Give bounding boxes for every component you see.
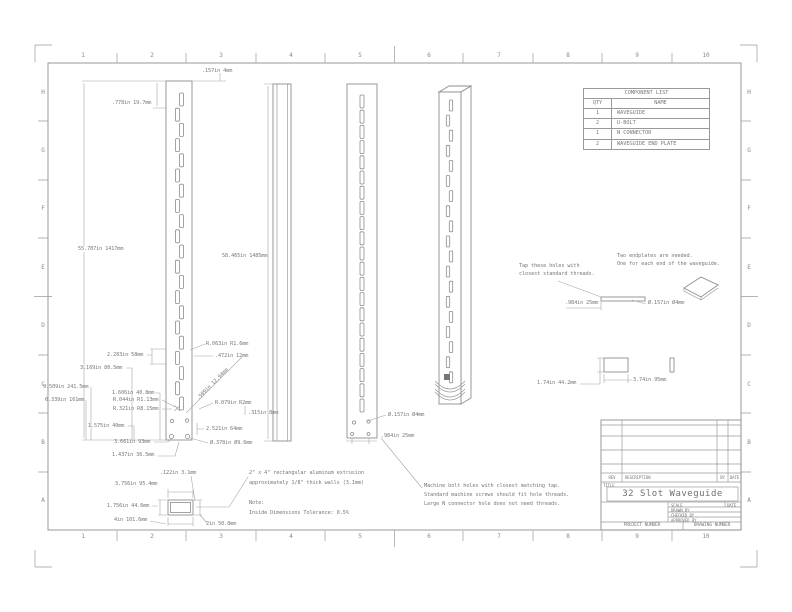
slot bbox=[360, 338, 364, 351]
zone-top-6: 6 bbox=[421, 52, 437, 59]
dim-offset-1606: 1.606in 40.8mm bbox=[112, 390, 154, 396]
slot bbox=[176, 169, 180, 182]
dim-radius-044: R.044in R1.13mm bbox=[113, 397, 158, 403]
zone-ticks-left bbox=[34, 121, 52, 472]
slot bbox=[180, 306, 184, 319]
dim-outer-width: 4in 101.6mm bbox=[114, 517, 147, 523]
zone-right-g: G bbox=[743, 147, 755, 154]
slot bbox=[360, 323, 364, 336]
endplate-side-view bbox=[601, 297, 645, 301]
zone-top-8: 8 bbox=[560, 52, 576, 59]
slot bbox=[449, 160, 452, 171]
slot bbox=[176, 230, 180, 243]
zone-bottom-9: 9 bbox=[629, 533, 645, 540]
row-name: WAVEGUIDE END PLATE bbox=[612, 140, 709, 149]
zone-bottom-1: 1 bbox=[75, 533, 91, 540]
note-label: Note: bbox=[249, 500, 264, 506]
zone-top-2: 2 bbox=[144, 52, 160, 59]
dim-endplate-height: 1.74in 44.2mm bbox=[537, 380, 576, 386]
dim-slot-length: .472in 12mm bbox=[215, 353, 248, 359]
endplate-front-view bbox=[604, 358, 628, 372]
note-endplates-line2: One for each end of the waveguide. bbox=[617, 261, 720, 267]
note-extrusion-line2: approximately 1/8" thick walls (3.1mm) bbox=[249, 480, 364, 486]
zone-right-d: D bbox=[743, 322, 755, 329]
description-header: DESCRIPTION bbox=[625, 475, 650, 480]
row-name: WAVEGUIDE bbox=[612, 109, 709, 118]
date-header: DATE bbox=[728, 475, 741, 480]
slot bbox=[180, 245, 184, 258]
row-qty: 2 bbox=[584, 119, 612, 128]
slot bbox=[176, 139, 180, 152]
slot bbox=[449, 251, 452, 262]
slot bbox=[360, 277, 364, 290]
zone-left-f: F bbox=[37, 205, 49, 212]
dim-body-length: 55.787in 1417mm bbox=[78, 246, 123, 252]
zone-left-b: B bbox=[37, 439, 49, 446]
dim-offset-315: .315in 8mm bbox=[248, 410, 278, 416]
dim-endplate-hole-dia: Ø.157in Ø4mm bbox=[648, 300, 684, 306]
project-number-label: PROJECT NUMBER bbox=[601, 523, 683, 528]
table-row: 2 U-BOLT bbox=[584, 119, 709, 129]
rear-view bbox=[346, 84, 422, 488]
dim-inner-width: 3.756in 95.4mm bbox=[115, 481, 157, 487]
slot bbox=[446, 115, 449, 126]
note-machine-bolts-line2: Standard machine screws should fit hole … bbox=[424, 492, 569, 498]
cross-section-detail bbox=[150, 476, 248, 526]
approved-by-label: APPROVED BY bbox=[671, 518, 696, 523]
component-list-title: COMPONENT LIST bbox=[584, 89, 709, 99]
dim-wall-thickness: .122in 3.1mm bbox=[160, 470, 196, 476]
slot bbox=[180, 123, 184, 136]
dim-endplate-hole-spacing: .984in 25mm bbox=[565, 300, 598, 306]
slot bbox=[360, 308, 364, 321]
dim-endplate-width: 3.74in 95mm bbox=[633, 377, 666, 383]
component-list-header-name: NAME bbox=[612, 99, 709, 108]
endplate-edge-view bbox=[670, 358, 674, 372]
table-row: 1 WAVEGUIDE bbox=[584, 109, 709, 119]
slot bbox=[360, 232, 364, 245]
dim-offset-3169: 3.169in 80.5mm bbox=[80, 365, 122, 371]
zone-right-c: C bbox=[743, 381, 755, 388]
zone-right-f: F bbox=[743, 205, 755, 212]
dim-inner-height: 1.756in 44.6mm bbox=[107, 503, 149, 509]
row-qty: 1 bbox=[584, 129, 612, 138]
slot bbox=[449, 281, 452, 292]
slot bbox=[180, 154, 184, 167]
zone-left-d: D bbox=[37, 322, 49, 329]
slot bbox=[449, 191, 452, 202]
dim-offset-9509: 9.509in 241.5mm bbox=[43, 384, 88, 390]
front-view bbox=[166, 81, 192, 440]
slot bbox=[176, 351, 180, 364]
row-name: U-BOLT bbox=[612, 119, 709, 128]
isometric-view bbox=[435, 86, 471, 404]
zone-top-7: 7 bbox=[491, 52, 507, 59]
dim-radius-079: R.079in R2mm bbox=[215, 400, 251, 406]
slot bbox=[176, 291, 180, 304]
zone-left-h: H bbox=[37, 89, 49, 96]
slot bbox=[180, 184, 184, 197]
dim-offset-1437: 1.437in 36.5mm bbox=[112, 452, 154, 458]
zone-bottom-7: 7 bbox=[491, 533, 507, 540]
slot bbox=[176, 382, 180, 395]
slot bbox=[360, 141, 364, 154]
endplate-dim-lines bbox=[558, 281, 646, 384]
drawing-sheet: 1 2 3 4 5 6 7 8 9 10 1 2 3 4 5 6 7 8 9 1… bbox=[0, 0, 792, 612]
zone-bottom-3: 3 bbox=[213, 533, 229, 540]
slot bbox=[446, 357, 449, 368]
slot bbox=[176, 321, 180, 334]
slot bbox=[360, 217, 364, 230]
zone-bottom-10: 10 bbox=[698, 533, 714, 540]
zone-left-a: A bbox=[37, 497, 49, 504]
slot bbox=[360, 125, 364, 138]
zone-top-3: 3 bbox=[213, 52, 229, 59]
slot bbox=[360, 247, 364, 260]
dim-top-offset: .157in 4mm bbox=[202, 68, 232, 74]
slot bbox=[449, 221, 452, 232]
row-name: N CONNECTOR bbox=[612, 129, 709, 138]
slot bbox=[360, 171, 364, 184]
slot bbox=[446, 327, 449, 338]
slot bbox=[446, 145, 449, 156]
note-endplates-line1: Two endplates are needed. bbox=[617, 253, 693, 259]
by-header: BY bbox=[717, 475, 728, 480]
n-connector-block bbox=[444, 374, 450, 380]
zone-right-b: B bbox=[743, 439, 755, 446]
zone-top-1: 1 bbox=[75, 52, 91, 59]
zone-top-10: 10 bbox=[698, 52, 714, 59]
slot bbox=[360, 95, 364, 108]
cross-section-dim-lines bbox=[150, 476, 248, 526]
row-qty: 2 bbox=[584, 140, 612, 149]
dim-offset-1575: 1.575in 40mm bbox=[88, 423, 124, 429]
date-label: DATE bbox=[727, 503, 736, 508]
zone-ticks-bottom bbox=[117, 530, 672, 547]
slot bbox=[360, 186, 364, 199]
table-row: 2 WAVEGUIDE END PLATE bbox=[584, 140, 709, 149]
slot bbox=[446, 236, 449, 247]
zone-bottom-8: 8 bbox=[560, 533, 576, 540]
slot bbox=[176, 199, 180, 212]
dim-offset-6339: 6.339in 161mm bbox=[45, 397, 84, 403]
dim-rear-hole-dia: Ø.157in Ø4mm bbox=[388, 412, 424, 418]
slot bbox=[360, 369, 364, 382]
endplate-views bbox=[558, 277, 718, 384]
dim-outer-height: 2in 50.8mm bbox=[206, 521, 236, 527]
dim-first-slot: .778in 19.7mm bbox=[112, 100, 151, 106]
slot bbox=[180, 336, 184, 349]
zone-top-5: 5 bbox=[352, 52, 368, 59]
zone-ticks-right bbox=[741, 121, 758, 472]
zone-right-h: H bbox=[743, 89, 755, 96]
zone-right-a: A bbox=[743, 497, 755, 504]
slot bbox=[180, 215, 184, 228]
zone-top-4: 4 bbox=[283, 52, 299, 59]
drawing-number-label: DRAWING NUMBER bbox=[683, 523, 741, 528]
zone-bottom-6: 6 bbox=[421, 533, 437, 540]
slot bbox=[180, 397, 184, 410]
dim-slot-pitch: 2.283in 58mm bbox=[107, 352, 143, 358]
note-tap-holes-line1: Tap these holes with bbox=[519, 263, 579, 269]
slot bbox=[446, 176, 449, 187]
slot bbox=[360, 399, 364, 412]
dim-hole-dia-378: Ø.378in Ø9.6mm bbox=[210, 440, 252, 446]
dim-slot-corner-radius: R.063in R1.6mm bbox=[206, 341, 248, 347]
zone-left-g: G bbox=[37, 147, 49, 154]
slot bbox=[360, 384, 364, 397]
note-machine-bolts-line1: Machine bolt holes with closest matching… bbox=[424, 483, 560, 489]
slot bbox=[449, 100, 452, 111]
dim-rear-hole-spacing: .984in 25mm bbox=[381, 433, 414, 439]
slot bbox=[360, 156, 364, 169]
slot bbox=[360, 110, 364, 123]
slot bbox=[180, 93, 184, 106]
slot bbox=[360, 201, 364, 214]
note-tolerance: Inside Dimensions Tolerance: 0.5% bbox=[249, 510, 349, 516]
row-qty: 1 bbox=[584, 109, 612, 118]
zone-bottom-4: 4 bbox=[283, 533, 299, 540]
side-view bbox=[273, 84, 291, 441]
slot bbox=[449, 130, 452, 141]
component-list-table: COMPONENT LIST QTY NAME 1 WAVEGUIDE 2 U-… bbox=[583, 88, 710, 150]
component-list-header: QTY NAME bbox=[584, 99, 709, 109]
slot bbox=[360, 353, 364, 366]
slot bbox=[176, 260, 180, 273]
note-extrusion-line1: 2" x 4" rectangular aluminum extrusion bbox=[249, 470, 364, 476]
note-machine-bolts-line3: Large N connector hole does not need thr… bbox=[424, 501, 560, 507]
zone-bottom-2: 2 bbox=[144, 533, 160, 540]
dim-offset-3661: 3.661in 93mm bbox=[114, 439, 150, 445]
zone-bottom-5: 5 bbox=[352, 533, 368, 540]
zone-top-9: 9 bbox=[629, 52, 645, 59]
slot bbox=[180, 275, 184, 288]
slot bbox=[180, 367, 184, 380]
zone-ticks-top bbox=[117, 46, 672, 63]
slot bbox=[360, 293, 364, 306]
dim-overall-length: 58.465in 1485mm bbox=[222, 253, 267, 259]
page-title: 32 Slot Waveguide bbox=[607, 488, 738, 500]
note-tap-holes-line2: closest standard threads. bbox=[519, 271, 595, 277]
slot bbox=[446, 296, 449, 307]
slot bbox=[360, 262, 364, 275]
zone-left-e: E bbox=[37, 264, 49, 271]
slot bbox=[446, 206, 449, 217]
slot bbox=[176, 108, 180, 121]
component-list-header-qty: QTY bbox=[584, 99, 612, 108]
dim-offset-2521: 2.521in 64mm bbox=[206, 426, 242, 432]
slot bbox=[446, 266, 449, 277]
slot bbox=[449, 311, 452, 322]
slot bbox=[449, 342, 452, 353]
zone-right-e: E bbox=[743, 264, 755, 271]
rear-view-slots bbox=[360, 95, 364, 412]
table-row: 1 N CONNECTOR bbox=[584, 129, 709, 139]
dim-radius-321: R.321in R8.15mm bbox=[113, 406, 158, 412]
rev-header: REV bbox=[602, 475, 622, 480]
